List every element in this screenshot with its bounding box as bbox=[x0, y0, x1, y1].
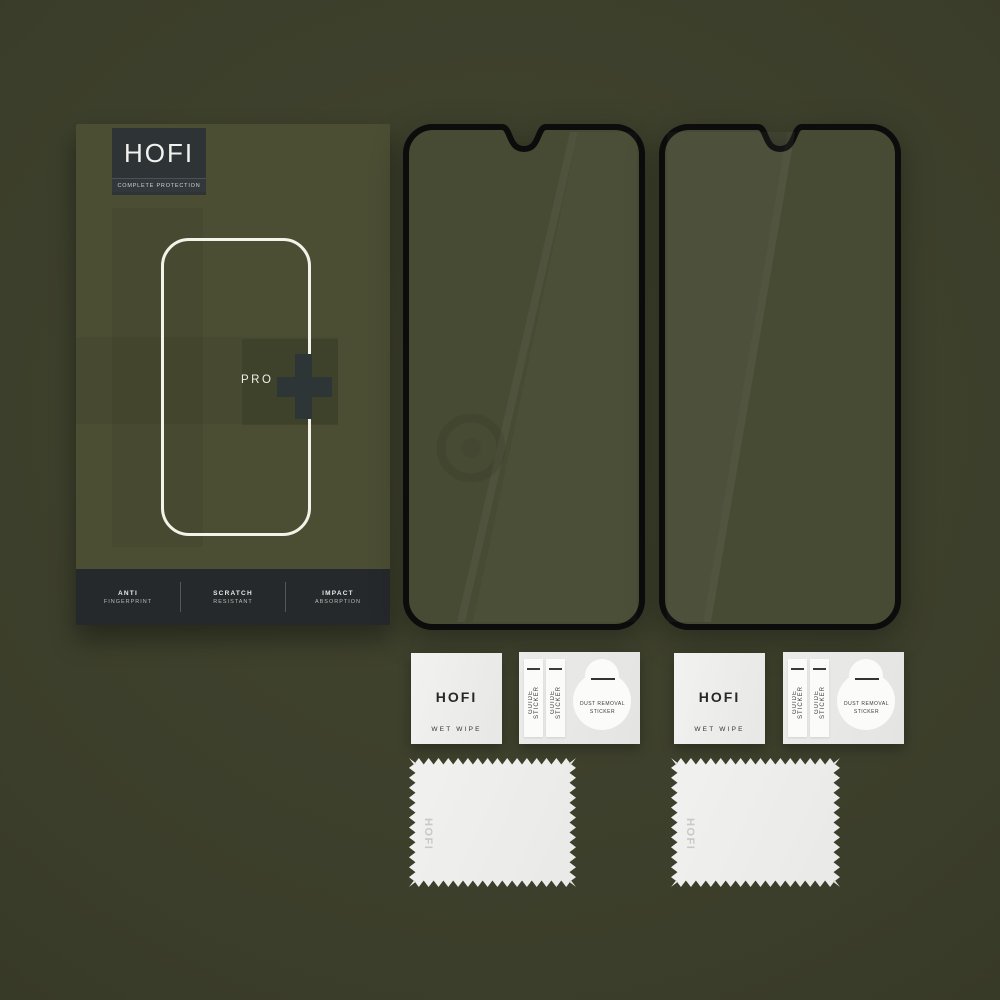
guide-sticker-dash bbox=[791, 668, 804, 670]
feature-scratch-resistant: SCRATCH RESISTANT bbox=[181, 590, 285, 605]
wet-wipe-label: WET WIPE bbox=[674, 726, 765, 733]
plus-icon bbox=[277, 377, 332, 397]
tempered-glass-protector-1 bbox=[403, 124, 645, 630]
wet-wipe-packet-2: HOFI WET WIPE bbox=[674, 653, 765, 744]
wet-wipe-brand: HOFI bbox=[674, 689, 765, 705]
cloth-brand: HOFI bbox=[422, 818, 434, 850]
guide-sticker-label: GUIDE STICKER bbox=[550, 673, 562, 731]
sticker-sheet-2: GUIDE STICKER GUIDE STICKER DUST REMOVAL… bbox=[783, 652, 904, 744]
wet-wipe-label: WET WIPE bbox=[411, 726, 502, 733]
dust-removal-dash bbox=[855, 678, 879, 680]
feature-anti-fingerprint: ANTI FINGERPRINT bbox=[76, 590, 180, 605]
microfiber-cloth-2: HOFI bbox=[671, 758, 840, 887]
guide-sticker-strip: GUIDE STICKER bbox=[810, 659, 829, 737]
guide-sticker-strip: GUIDE STICKER bbox=[524, 659, 543, 737]
cloth-brand: HOFI bbox=[684, 818, 696, 850]
guide-sticker-label: GUIDE STICKER bbox=[792, 673, 804, 731]
camera-ghost-dot bbox=[461, 438, 481, 458]
guide-sticker-strip: GUIDE STICKER bbox=[546, 659, 565, 737]
guide-sticker-dash bbox=[527, 668, 540, 670]
product-photo: HOFI COMPLETE PROTECTION PRO ANTI FINGER… bbox=[0, 0, 1000, 1000]
guide-sticker-strip: GUIDE STICKER bbox=[788, 659, 807, 737]
guide-sticker-dash bbox=[549, 668, 562, 670]
wet-wipe-brand: HOFI bbox=[411, 689, 502, 705]
dust-removal-label: DUST REMOVAL STICKER bbox=[569, 700, 636, 716]
retail-box: HOFI COMPLETE PROTECTION PRO ANTI FINGER… bbox=[76, 124, 390, 625]
brand-tagline: COMPLETE PROTECTION bbox=[112, 178, 206, 192]
brand-logo-block: HOFI COMPLETE PROTECTION bbox=[112, 128, 206, 195]
feature-strip: ANTI FINGERPRINT SCRATCH RESISTANT IMPAC… bbox=[76, 569, 390, 625]
guide-sticker-dash bbox=[813, 668, 826, 670]
feature-impact-absorption: IMPACT ABSORPTION bbox=[286, 590, 390, 605]
guide-sticker-label: GUIDE STICKER bbox=[528, 673, 540, 731]
dust-removal-label: DUST REMOVAL STICKER bbox=[833, 700, 900, 716]
guide-sticker-label: GUIDE STICKER bbox=[814, 673, 826, 731]
tempered-glass-protector-2 bbox=[659, 124, 901, 630]
wet-wipe-packet-1: HOFI WET WIPE bbox=[411, 653, 502, 744]
dust-removal-dash bbox=[591, 678, 615, 680]
sticker-sheet-1: GUIDE STICKER GUIDE STICKER DUST REMOVAL… bbox=[519, 652, 640, 744]
microfiber-cloth-1: HOFI bbox=[409, 758, 576, 887]
brand-logo: HOFI bbox=[112, 128, 206, 178]
